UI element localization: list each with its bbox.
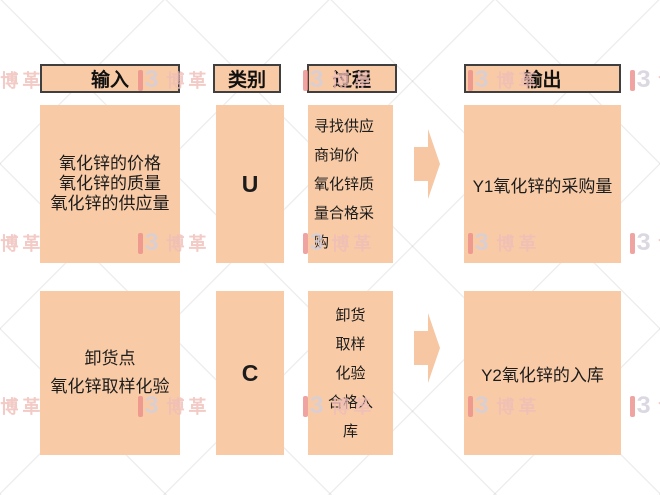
watermark-logo-icon: 3	[637, 68, 651, 92]
watermark-logo-icon: 3	[637, 231, 651, 255]
input-line: 氧化锌取样化验	[51, 373, 170, 401]
watermark-bar-icon	[630, 233, 635, 254]
output-value: Y2氧化锌的入库	[481, 361, 604, 386]
watermark-brand-text: 博革	[0, 230, 44, 256]
process-line: 卸货	[308, 301, 393, 330]
input-line: 氧化锌的价格	[59, 154, 161, 174]
arrow-right-icon	[414, 313, 440, 383]
output-value: Y1氧化锌的采购量	[473, 172, 613, 197]
process-box-row1: 寻找供应 商询价 氧化锌质 量合格采 购	[308, 105, 393, 263]
brand-watermark: 3博革	[0, 392, 44, 420]
header-output-label: 输出	[523, 65, 561, 92]
input-line: 氧化锌的质量	[59, 174, 161, 194]
category-value: U	[242, 171, 259, 198]
header-output: 输出	[464, 64, 621, 93]
category-value: C	[242, 360, 259, 387]
output-box-row1: Y1氧化锌的采购量	[464, 105, 621, 263]
process-box-row2: 卸货 取样 化验 合格入 库	[308, 291, 393, 455]
process-line: 取样	[308, 330, 393, 359]
header-input-label: 输入	[91, 65, 129, 92]
header-category-label: 类别	[228, 65, 266, 92]
header-category: 类别	[213, 64, 281, 93]
process-line: 寻找供应	[308, 112, 393, 141]
input-line: 氧化锌的供应量	[51, 194, 170, 214]
process-line: 氧化锌质	[308, 170, 393, 199]
process-line: 合格入	[308, 388, 393, 417]
input-box-row2: 卸货点 氧化锌取样化验	[40, 291, 180, 455]
brand-watermark: 3博革	[0, 66, 44, 94]
process-line: 化验	[308, 359, 393, 388]
category-box-row2: C	[216, 291, 284, 455]
process-line: 库	[308, 417, 393, 446]
process-line: 购	[308, 228, 393, 257]
category-box-row1: U	[216, 105, 284, 263]
input-line: 卸货点	[85, 345, 136, 373]
header-input: 输入	[40, 64, 180, 93]
brand-watermark: 3博革	[630, 392, 660, 420]
process-line: 商询价	[308, 141, 393, 170]
sipoc-process-diagram: 输入 类别 过程 输出 氧化锌的价格 氧化锌的质量 氧化锌的供应量 U 寻找供应…	[0, 0, 660, 495]
header-process: 过程	[307, 64, 397, 93]
output-box-row2: Y2氧化锌的入库	[464, 291, 621, 455]
arrow-right-icon	[414, 129, 440, 199]
watermark-bar-icon	[630, 396, 635, 417]
brand-watermark: 3博革	[630, 66, 660, 94]
watermark-brand-text: 博革	[0, 67, 44, 93]
brand-watermark: 3博革	[630, 229, 660, 257]
input-box-row1: 氧化锌的价格 氧化锌的质量 氧化锌的供应量	[40, 105, 180, 263]
process-line: 量合格采	[308, 199, 393, 228]
header-process-label: 过程	[333, 65, 371, 92]
watermark-brand-text: 博革	[0, 393, 44, 419]
brand-watermark: 3博革	[0, 229, 44, 257]
watermark-logo-icon: 3	[637, 394, 651, 418]
watermark-bar-icon	[630, 70, 635, 91]
